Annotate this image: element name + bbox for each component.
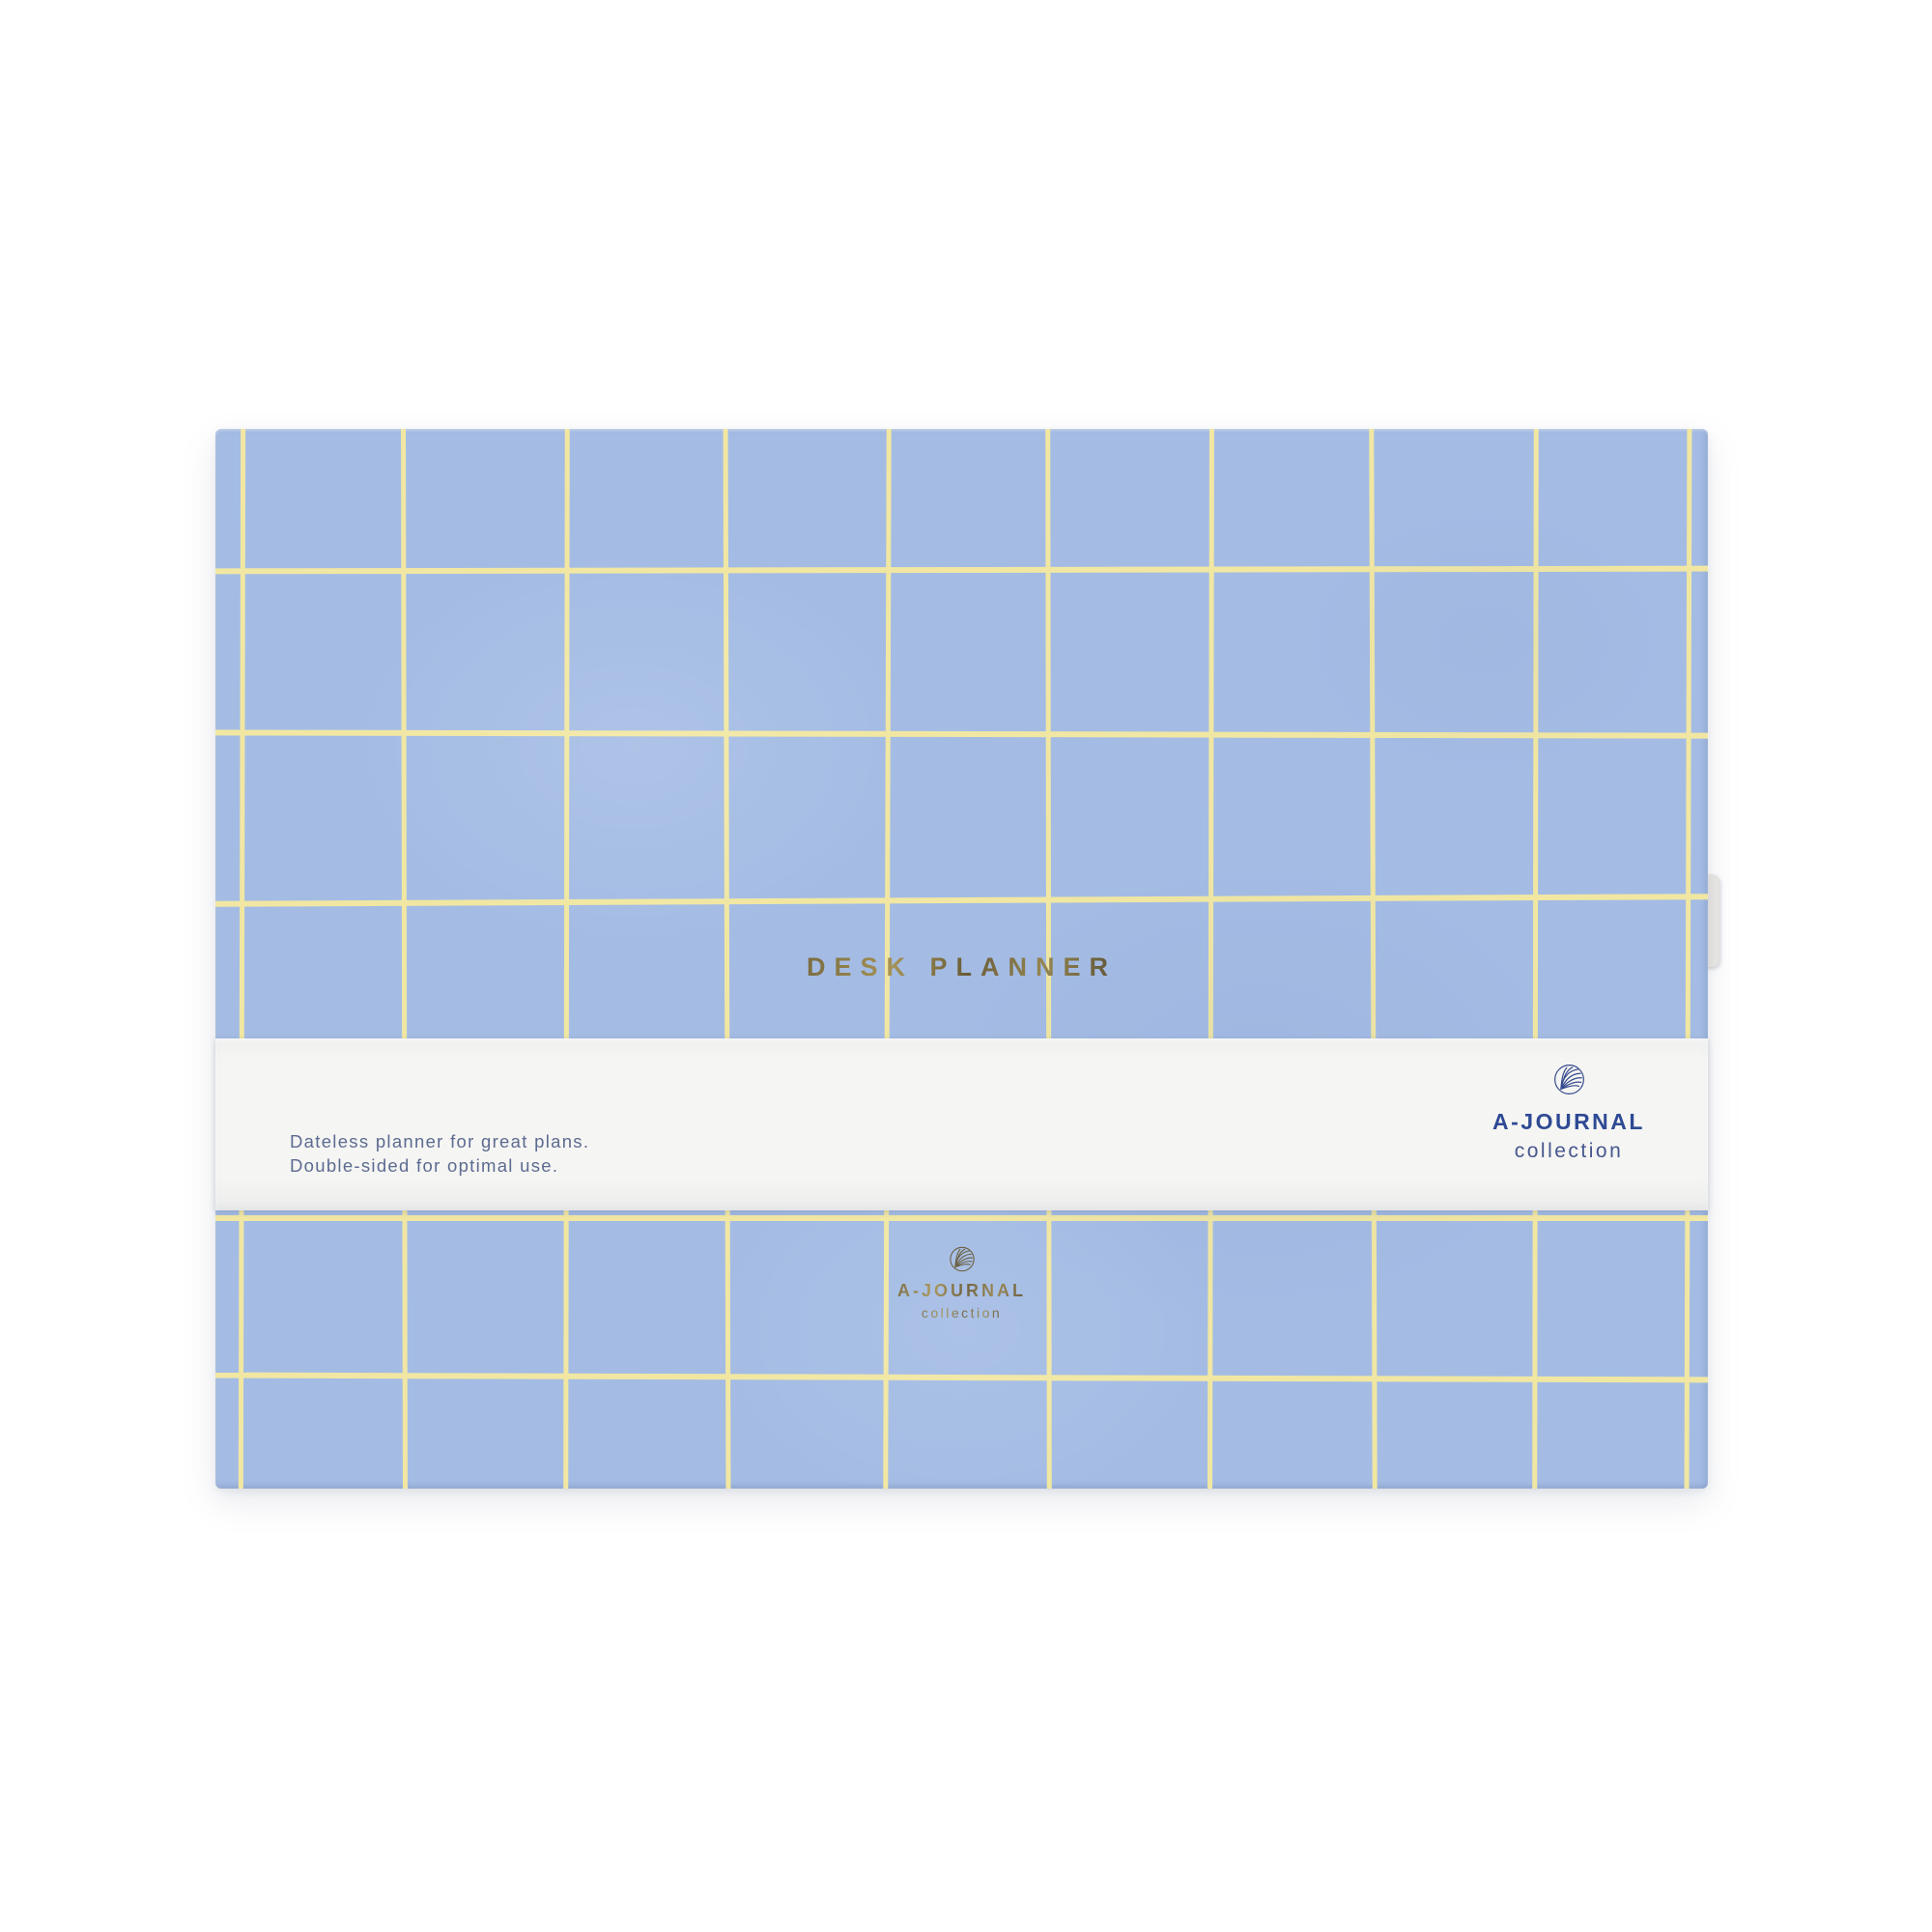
grid-line-vertical: [724, 429, 731, 1489]
band-brand-logo: A-JOURNAL collection: [1484, 1064, 1654, 1163]
product-photo: DESK PLANNER A-JOURNAL c: [0, 0, 1932, 1932]
grid-line-vertical: [1532, 429, 1539, 1489]
grid-line-vertical: [401, 429, 408, 1489]
grid-line-horizontal: [215, 1215, 1708, 1221]
cover-brand-logo: A-JOURNAL collection: [897, 1246, 1026, 1321]
grid-line-vertical: [239, 429, 245, 1489]
planner-cover: DESK PLANNER A-JOURNAL c: [215, 429, 1708, 1489]
band-brand-name: A-JOURNAL: [1492, 1109, 1645, 1135]
belly-band: Dateless planner for great plans. Double…: [215, 1038, 1708, 1210]
band-tagline-line1: Dateless planner for great plans.: [290, 1129, 589, 1153]
grid-line-vertical: [563, 429, 570, 1489]
grid-line-horizontal: [215, 566, 1708, 575]
leaf-logo-icon: [1553, 1064, 1585, 1095]
grid-line-horizontal: [215, 729, 1708, 738]
leaf-logo-icon: [949, 1246, 975, 1272]
grid-line-vertical: [1369, 429, 1378, 1489]
band-tagline-line2: Double-sided for optimal use.: [290, 1153, 589, 1178]
cover-brand-name: A-JOURNAL: [897, 1281, 1026, 1301]
grid-line-vertical: [1685, 429, 1692, 1489]
grid-line-horizontal: [215, 894, 1708, 907]
grid-line-vertical: [1207, 429, 1214, 1489]
cover-title: DESK PLANNER: [807, 952, 1117, 982]
grid-line-horizontal: [215, 1373, 1708, 1383]
band-tagline: Dateless planner for great plans. Double…: [290, 1129, 589, 1178]
band-brand-sub: collection: [1515, 1140, 1624, 1163]
cover-brand-sub: collection: [922, 1305, 1002, 1321]
